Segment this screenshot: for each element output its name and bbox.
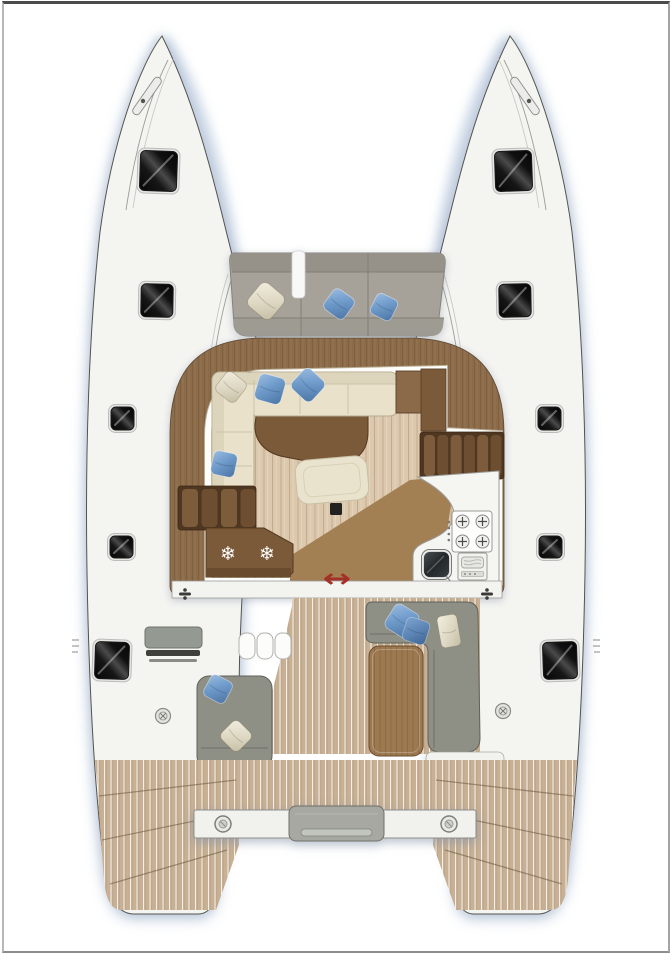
sliding-door-arrow-icon: ↔ xyxy=(323,564,351,594)
hatch-starboard-icon xyxy=(536,405,564,433)
port-beam-fitting xyxy=(215,816,231,832)
hatch-starboard-icon xyxy=(492,148,536,194)
freezer-snowflake-icon: ❄ xyxy=(220,543,236,565)
dinghy-platform xyxy=(289,806,384,841)
port-deck-fitting xyxy=(156,709,171,724)
aft-crossbeam xyxy=(194,806,476,841)
hatch-port-icon xyxy=(108,534,136,561)
fridge-snowflake-icon: ❄ xyxy=(259,543,275,565)
port-bow-fitting xyxy=(141,99,145,103)
stove xyxy=(448,511,493,552)
hatch-starboard-icon xyxy=(496,281,534,320)
hatch-starboard-icon xyxy=(537,534,565,561)
starboard-deck-fitting xyxy=(496,704,511,719)
foredeck-backrest xyxy=(231,253,446,272)
starboard-hull-marks xyxy=(593,640,600,652)
port-hull-marks xyxy=(72,640,79,652)
starboard-beam-fitting xyxy=(441,816,457,832)
port-stairs xyxy=(178,486,256,530)
plan-drawing: ❄ ❄ xyxy=(0,0,672,960)
pillow-blue xyxy=(210,450,238,478)
hatch-starboard-icon xyxy=(540,639,580,682)
cockpit-steps xyxy=(239,633,291,659)
hatch-port-icon xyxy=(137,148,181,194)
aft-deck xyxy=(95,760,577,910)
hatch-port-icon xyxy=(109,405,137,433)
cockpit-table xyxy=(369,646,423,756)
foredeck-seat-gap xyxy=(292,251,305,298)
oven xyxy=(458,553,487,580)
hatch-port-icon xyxy=(138,281,176,320)
svg-text:↔: ↔ xyxy=(323,564,351,594)
hatch-port-icon xyxy=(92,639,132,682)
mast-post xyxy=(330,503,342,515)
boat-floor-plan: ❄ ❄ xyxy=(0,0,672,960)
ottoman xyxy=(294,455,370,505)
starboard-bow-fitting xyxy=(527,99,531,103)
